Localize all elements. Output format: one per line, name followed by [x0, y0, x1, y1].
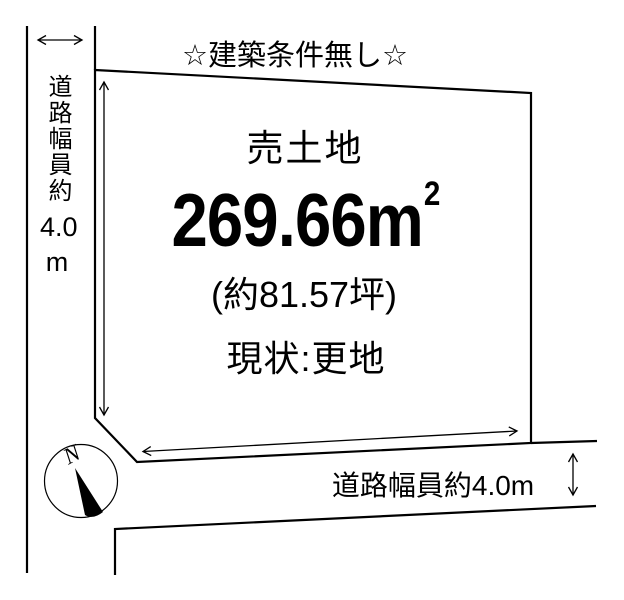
bottom-road-south-edge: [115, 506, 596, 575]
parcel-area-tsubo: (約81.57坪): [154, 266, 454, 318]
parcel-current-status: 現状:更地: [156, 330, 456, 382]
bottom-road-width-label: 道路幅員約4.0m: [330, 464, 536, 504]
parcel-sale-label: 売土地: [155, 118, 455, 172]
left-road-width-label-kanji: 道路幅員約: [40, 74, 74, 204]
parcel-south-dimension-arrow: [143, 431, 517, 452]
left-road-width-label: 道路幅員約 4.0 m: [40, 74, 74, 278]
parcel-area-value: 269.66m: [171, 177, 423, 263]
land-plot-diagram: ☆建築条件無し☆ 売土地 269.66m2 (約81.57坪) 現状:更地 道路…: [0, 0, 624, 600]
left-road-width-unit: m: [40, 247, 74, 278]
bottom-road-north-edge-extension: [531, 441, 597, 443]
parcel-area-sqm: 269.66m2: [166, 186, 444, 254]
left-road-width-value: 4.0: [40, 212, 74, 243]
page-title: ☆建築条件無し☆: [145, 32, 445, 74]
